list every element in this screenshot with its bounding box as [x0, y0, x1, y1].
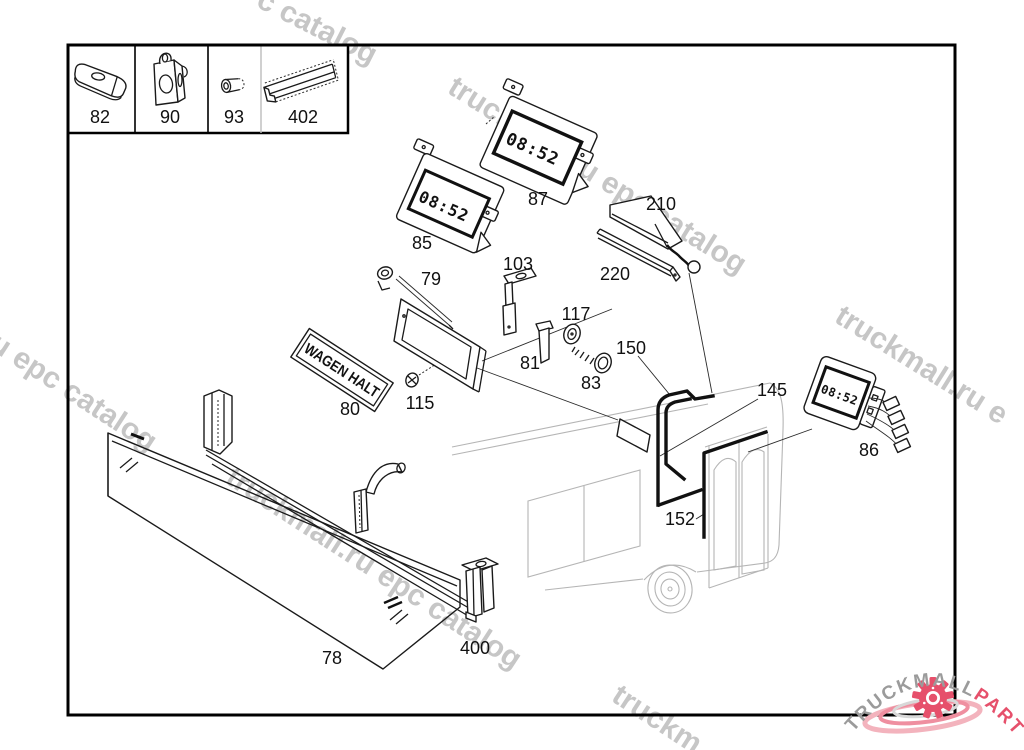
part-label-83: 83 [581, 373, 601, 393]
part-78-panel [108, 433, 460, 669]
rail-bracket-end [462, 558, 498, 622]
seal-150-inner [666, 399, 690, 479]
part-label-85: 85 [412, 233, 432, 253]
part-label-145: 145 [757, 380, 787, 400]
part-label-400: 400 [460, 638, 490, 658]
part-label-79: 79 [421, 269, 441, 289]
legend-box: 82 90 93 402 [68, 45, 348, 133]
part-label-78: 78 [322, 648, 342, 668]
seal-152-145 [704, 432, 766, 537]
part-label-103: 103 [503, 254, 533, 274]
part-83-bolt [572, 347, 614, 375]
part-117-grommet [561, 322, 582, 346]
seal-bottom [659, 490, 701, 505]
part-86-display: 08:52 [802, 355, 910, 453]
rail-bracket-left [204, 390, 232, 454]
part-103-bracket [503, 268, 536, 335]
legend-label-82: 82 [90, 107, 110, 127]
part-label-80: 80 [340, 399, 360, 419]
part-label-87: 87 [528, 189, 548, 209]
legend-label-90: 90 [160, 107, 180, 127]
part-label-115: 115 [406, 393, 435, 413]
parts-diagram-canvas: c catalog truckmall.ru epc catalog u epc… [0, 0, 1024, 750]
legend-label-402: 402 [288, 107, 318, 127]
mounting-plate [617, 419, 650, 452]
part-label-81: 81 [520, 353, 540, 373]
rail-bracket-hook [354, 462, 406, 533]
legend-label-93: 93 [224, 107, 244, 127]
bus-outline [452, 383, 783, 616]
parts-catalog-page: c catalog truckmall.ru epc catalog u epc… [0, 0, 1024, 750]
part-label-220: 220 [600, 264, 630, 284]
part-115-screw [404, 371, 420, 388]
watermark-upper: truckmall.ru epc catalog [442, 70, 752, 281]
part-label-86: 86 [859, 440, 879, 460]
part-label-117: 117 [562, 304, 591, 324]
part-label-150: 150 [616, 338, 646, 358]
part-label-152: 152 [665, 509, 695, 529]
part-label-210: 210 [646, 194, 676, 214]
